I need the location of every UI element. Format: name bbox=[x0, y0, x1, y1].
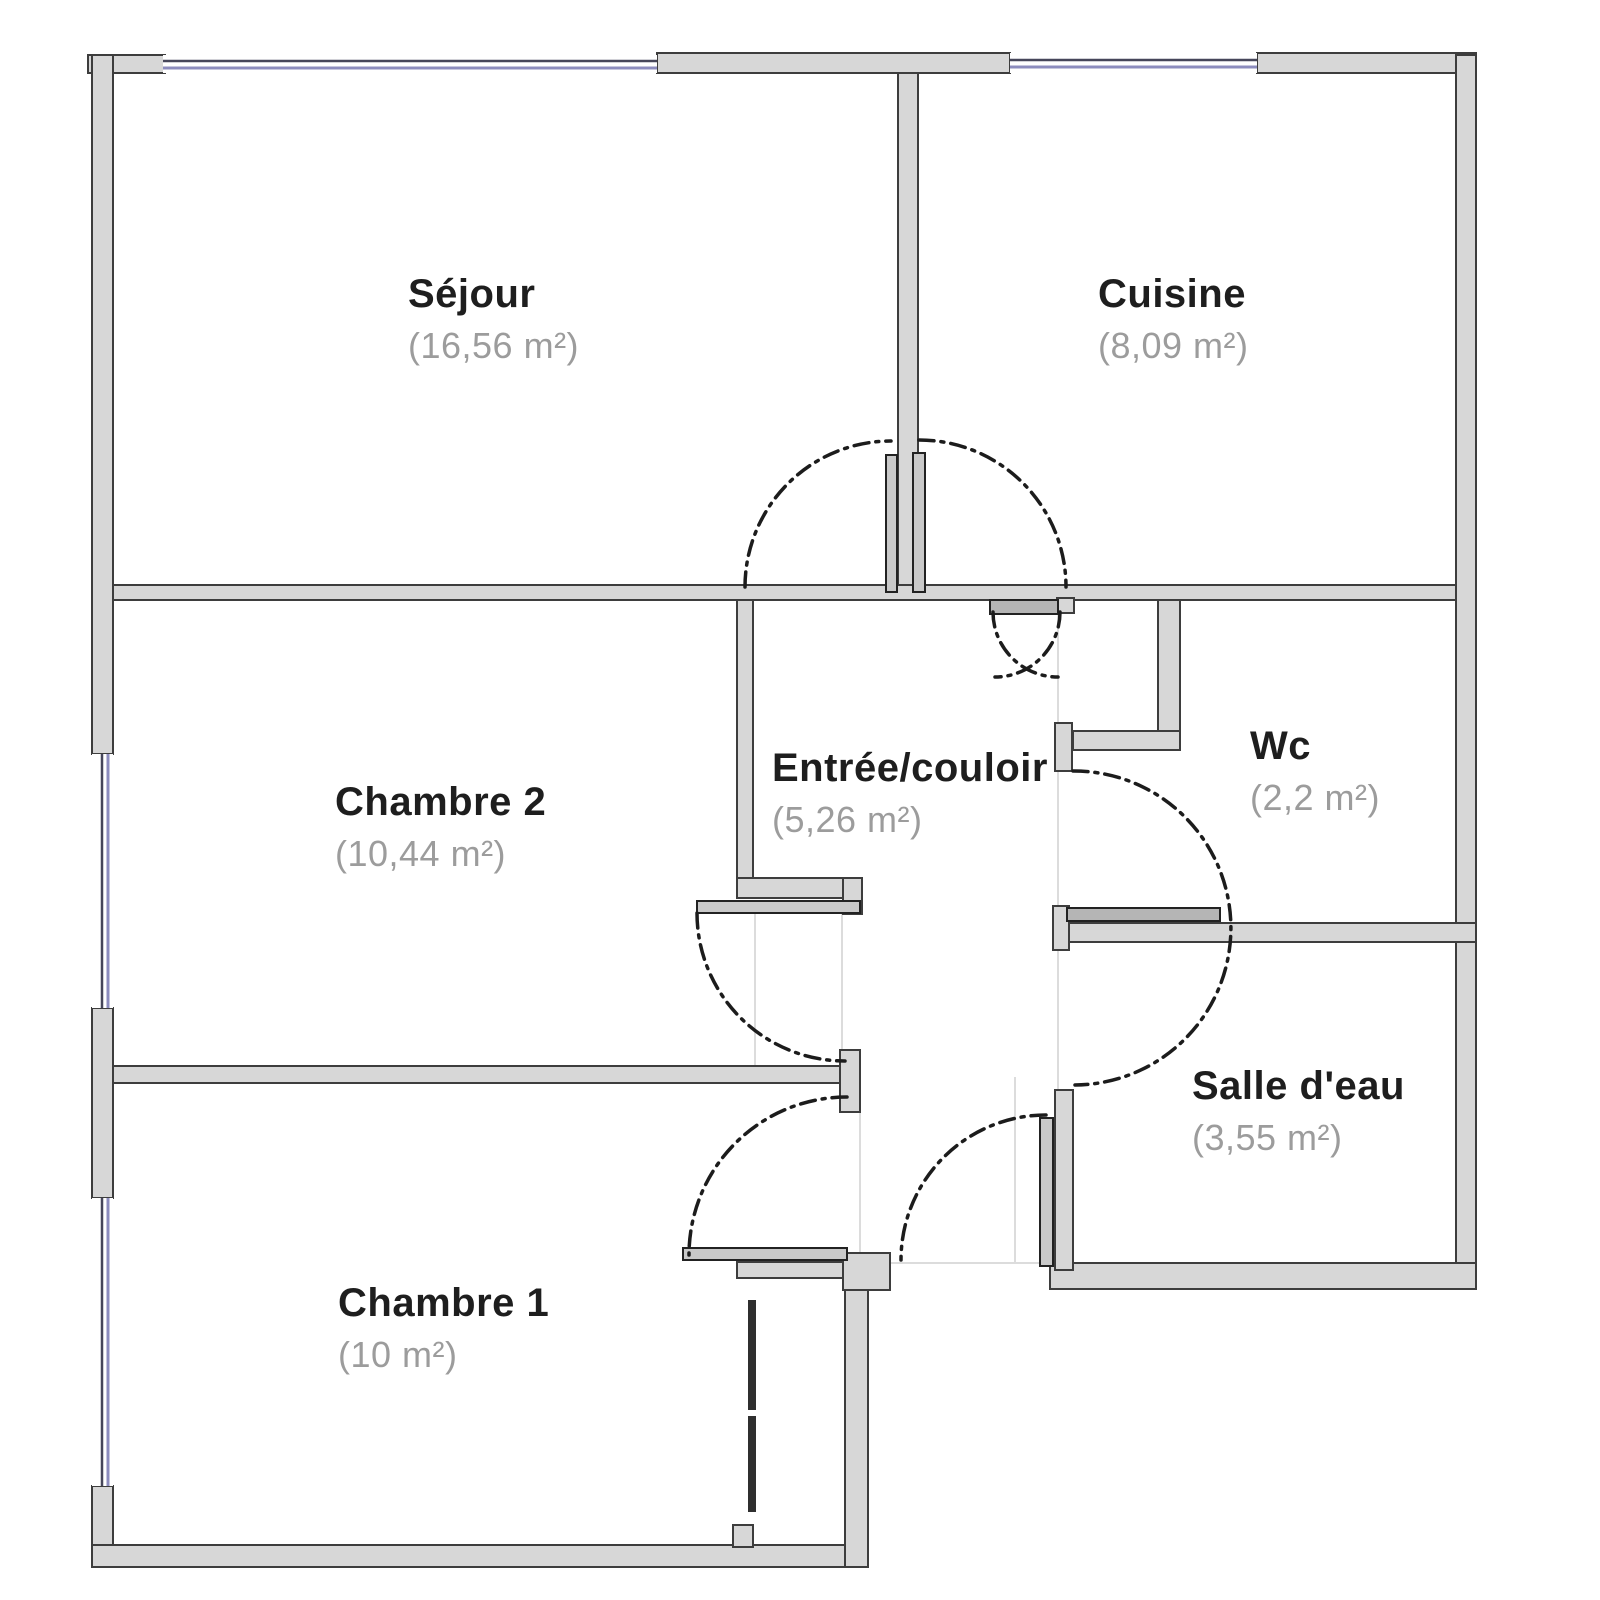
room-label-chambre2: Chambre 2 (10,44 m²) bbox=[335, 780, 546, 875]
room-name: Salle d'eau bbox=[1192, 1064, 1405, 1109]
wall-bottom bbox=[92, 1545, 868, 1567]
wall-vestibule-north bbox=[737, 1262, 847, 1278]
wall-jamb-wc bbox=[1055, 723, 1072, 771]
door-leaves bbox=[683, 453, 1220, 1512]
room-label-salle-deau: Salle d'eau (3,55 m²) bbox=[1192, 1064, 1405, 1159]
wall-salle-deau-north bbox=[1055, 923, 1476, 942]
door-leaf-salle-deau bbox=[1067, 908, 1220, 921]
door-arc-sejour bbox=[745, 441, 891, 587]
room-area: (10 m²) bbox=[338, 1334, 549, 1376]
wall-vestibule-east bbox=[845, 1263, 868, 1567]
room-name: Entrée/couloir bbox=[772, 746, 1048, 791]
window-cuisine-top bbox=[1010, 53, 1257, 73]
room-area: (2,2 m²) bbox=[1250, 777, 1380, 819]
floor-plan: Séjour (16,56 m²) Cuisine (8,09 m²) Cham… bbox=[0, 0, 1600, 1600]
wall-chambre2-south bbox=[113, 1066, 843, 1083]
room-name: Chambre 2 bbox=[335, 780, 546, 825]
door-leaf-cuisine bbox=[913, 453, 925, 592]
wall-left-upper bbox=[92, 55, 113, 754]
room-name: Cuisine bbox=[1098, 272, 1249, 317]
room-label-chambre1: Chambre 1 (10 m²) bbox=[338, 1281, 549, 1376]
wall-salle-deau-south bbox=[1050, 1263, 1476, 1289]
wall-entree-west bbox=[737, 600, 753, 898]
wall-jamb-bottom bbox=[733, 1525, 753, 1547]
door-leaf-vestibule-lower bbox=[748, 1416, 756, 1512]
door-arc-chambre1 bbox=[689, 1097, 847, 1255]
room-area: (10,44 m²) bbox=[335, 833, 546, 875]
door-arcs bbox=[689, 440, 1231, 1260]
window-chambre2-left bbox=[92, 754, 113, 1008]
door-leaf-chambre2 bbox=[697, 901, 860, 913]
room-label-wc: Wc (2,2 m²) bbox=[1250, 724, 1380, 819]
wall-top-center-block bbox=[657, 53, 1010, 73]
room-name: Wc bbox=[1250, 724, 1380, 769]
wall-main-horizontal bbox=[113, 585, 1456, 600]
wall-entree-southwest bbox=[737, 878, 845, 898]
open-boundaries bbox=[755, 610, 1058, 1263]
wall-right bbox=[1456, 55, 1476, 1289]
room-label-cuisine: Cuisine (8,09 m²) bbox=[1098, 272, 1249, 367]
window-sejour-top bbox=[163, 55, 657, 73]
room-area: (5,26 m²) bbox=[772, 799, 1048, 841]
wall-entry-step bbox=[843, 1253, 890, 1290]
window-chambre1-left bbox=[92, 1198, 113, 1486]
door-leaf-corridor-top bbox=[990, 600, 1058, 614]
door-leaf-chambre1 bbox=[683, 1248, 847, 1260]
door-arc-chambre2 bbox=[697, 913, 845, 1061]
door-arc-cuisine bbox=[919, 440, 1066, 587]
door-arc-entry bbox=[901, 1115, 1046, 1260]
wall-salle-deau-west bbox=[1055, 1090, 1073, 1270]
door-leaf-sejour bbox=[886, 455, 897, 592]
room-name: Chambre 1 bbox=[338, 1281, 549, 1326]
room-label-entree: Entrée/couloir (5,26 m²) bbox=[772, 746, 1048, 841]
wall-left-middle bbox=[92, 1008, 113, 1198]
wall-top-right-block bbox=[1257, 53, 1476, 73]
room-name: Séjour bbox=[408, 272, 579, 317]
wall-wc-southwest bbox=[1073, 731, 1180, 750]
door-leaf-entry-corridor bbox=[1040, 1118, 1053, 1266]
door-arc-corridor-top-left bbox=[993, 612, 1058, 677]
door-arc-corridor-top-right bbox=[995, 612, 1060, 677]
wall-wc-west bbox=[1158, 600, 1180, 750]
room-area: (3,55 m²) bbox=[1192, 1117, 1405, 1159]
room-area: (16,56 m²) bbox=[408, 325, 579, 367]
door-leaf-vestibule-upper bbox=[748, 1300, 756, 1410]
room-label-sejour: Séjour (16,56 m²) bbox=[408, 272, 579, 367]
room-area: (8,09 m²) bbox=[1098, 325, 1249, 367]
